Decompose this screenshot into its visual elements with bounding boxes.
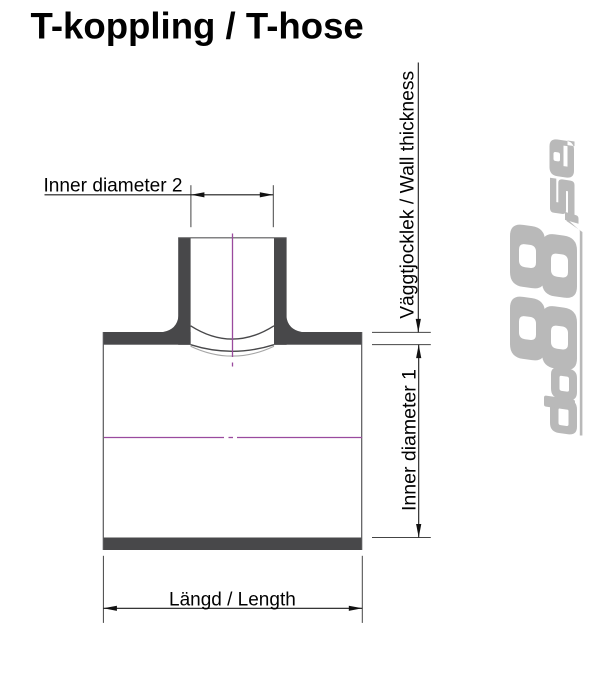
- svg-text:Inner diameter 2: Inner diameter 2: [44, 175, 183, 196]
- svg-text:Inner diameter 1: Inner diameter 1: [399, 369, 421, 511]
- svg-text:Väggtjocklek / Wall thickness: Väggtjocklek / Wall thickness: [398, 71, 419, 319]
- svg-text:T-koppling / T-hose: T-koppling / T-hose: [31, 6, 364, 47]
- svg-text:Längd / Length: Längd / Length: [169, 589, 296, 610]
